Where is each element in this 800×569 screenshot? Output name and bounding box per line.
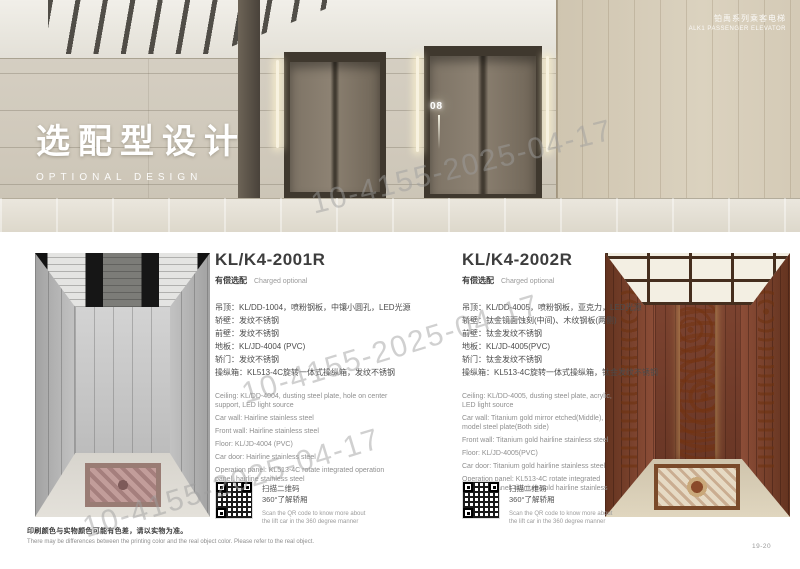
hall-lamp-icon — [546, 56, 549, 152]
floor-indicator: 08 — [430, 101, 443, 112]
catalog-page: 08 选配型设计 OPTIONAL DESIGN 铂禹系列乘客电梯 ALK1 P… — [0, 0, 800, 569]
charged-optional-badge: 有偿选配 Charged optional — [215, 275, 405, 286]
badge-zh: 有偿选配 — [462, 275, 494, 286]
qr-finder — [463, 508, 473, 518]
spec-line: Front wall: Hairline stainless steel — [215, 427, 405, 436]
qr-finder — [463, 482, 473, 492]
spec-list-en: Ceiling: KL/DD-4004, dusting steel plate… — [215, 392, 405, 484]
spec-line: Car door: Titanium gold hairline stainle… — [462, 462, 612, 471]
color-disclaimer: 印刷颜色与实物颜色可能有色差，请以实物为准。 There may be diff… — [27, 526, 314, 545]
cab-back-wall — [655, 301, 740, 461]
spec-line: 前壁：钛金发纹不锈钢 — [462, 327, 612, 340]
qr-code — [215, 481, 253, 519]
qr-finder — [242, 482, 252, 492]
qr-finder — [489, 482, 499, 492]
color-disclaimer-zh: 印刷颜色与实物颜色可能有色差，请以实物为准。 — [27, 526, 314, 536]
qr-caption-zh-1: 扫描二维码 — [509, 483, 621, 494]
badge-zh: 有偿选配 — [215, 275, 247, 286]
spec-line: 轿壁：发纹不锈钢 — [215, 314, 405, 327]
series-title-zh: 铂禹系列乘客电梯 — [689, 13, 786, 24]
spec-line: Floor: KL/JD-4004 (PVC) — [215, 440, 405, 449]
cab-render-2001r — [35, 253, 210, 517]
spec-list-zh: 吊顶：KL/DD-4005，喷粉钢板，亚克力，LED光源 轿壁：钛金镜面蚀刻(中… — [462, 301, 612, 379]
product-card-2002r: KL/K4-2002R 有偿选配 Charged optional 吊顶：KL/… — [462, 250, 612, 506]
spec-line: 吊顶：KL/DD-4005，喷粉钢板，亚克力，LED光源 — [462, 301, 612, 314]
hall-lamp-icon — [416, 56, 419, 152]
spec-line: 轿门：发纹不锈钢 — [215, 353, 405, 366]
gold-etched-panel — [680, 301, 715, 461]
qr-caption-en: Scan the QR code to know more about the … — [509, 510, 621, 526]
product-model: KL/K4-2001R — [215, 250, 405, 270]
spec-line: 操纵箱：KL513-4C旋转一体式操纵箱，发纹不锈钢 — [215, 366, 405, 379]
spec-line: Ceiling: KL/DD-4005, dusting steel plate… — [462, 392, 612, 410]
spec-line: Front wall: Titanium gold hairline stain… — [462, 436, 612, 445]
spec-line: Ceiling: KL/DD-4004, dusting steel plate… — [215, 392, 405, 410]
page-subtitle: OPTIONAL DESIGN — [36, 172, 246, 183]
qr-caption-zh-1: 扫描二维码 — [262, 483, 374, 494]
spec-line: Car wall: Titanium gold mirror etched(Mi… — [462, 414, 612, 432]
spec-line: 操纵箱：KL513-4C旋转一体式操纵箱，钛金发纹不锈钢 — [462, 366, 612, 379]
hall-lamp-icon — [276, 60, 279, 148]
spec-line: Car door: Hairline stainless steel — [215, 453, 405, 462]
spec-line: 轿门：钛金发纹不锈钢 — [462, 353, 612, 366]
product-model: KL/K4-2002R — [462, 250, 612, 270]
page-title: 选配型设计 — [36, 114, 246, 163]
spec-line: 轿壁：钛金镜面蚀刻(中间)、木纹钢板(两侧) — [462, 314, 612, 327]
page-title-block: 选配型设计 OPTIONAL DESIGN — [36, 114, 246, 183]
qr-caption: 扫描二维码 360°了解轿厢 Scan the QR code to know … — [262, 481, 374, 526]
qr-block-2001r: 扫描二维码 360°了解轿厢 Scan the QR code to know … — [215, 481, 374, 526]
qr-code — [462, 481, 500, 519]
spec-list-zh: 吊顶：KL/DD-1004，喷粉钢板，中镶小圆孔，LED光源 轿壁：发纹不锈钢 … — [215, 301, 405, 379]
qr-finder — [216, 508, 226, 518]
cab-back-wall — [75, 303, 170, 455]
hero-lobby-photo: 08 选配型设计 OPTIONAL DESIGN 铂禹系列乘客电梯 ALK1 P… — [0, 0, 800, 232]
cab-render-2002r — [605, 253, 790, 517]
qr-finder — [216, 482, 226, 492]
qr-caption-zh-2: 360°了解轿厢 — [262, 494, 374, 505]
elevator-door-1 — [284, 52, 386, 198]
spec-line: 吊顶：KL/DD-1004，喷粉钢板，中镶小圆孔，LED光源 — [215, 301, 405, 314]
gold-etched-strip — [758, 290, 774, 470]
series-title-en: ALK1 PASSENGER ELEVATOR — [689, 26, 786, 32]
spec-line: Floor: KL/JD-4005(PVC) — [462, 449, 612, 458]
spec-line: 前壁：发纹不锈钢 — [215, 327, 405, 340]
gold-etched-strip — [621, 290, 637, 470]
badge-en: Charged optional — [254, 278, 307, 285]
lobby-floor — [0, 198, 800, 232]
qr-block-2002r: 扫描二维码 360°了解轿厢 Scan the QR code to know … — [462, 481, 621, 526]
color-disclaimer-en: There may be differences between the pri… — [27, 539, 314, 545]
page-number: 19-20 — [752, 543, 771, 550]
qr-caption: 扫描二维码 360°了解轿厢 Scan the QR code to know … — [509, 481, 621, 526]
charged-optional-badge: 有偿选配 Charged optional — [462, 275, 612, 286]
badge-en: Charged optional — [501, 278, 554, 285]
spec-line: 地板：KL/JD-4005(PVC) — [462, 340, 612, 353]
spec-line: 地板：KL/JD-4004 (PVC) — [215, 340, 405, 353]
series-title-block: 铂禹系列乘客电梯 ALK1 PASSENGER ELEVATOR — [689, 13, 786, 32]
spec-line: Car wall: Hairline stainless steel — [215, 414, 405, 423]
product-card-2001r: KL/K4-2001R 有偿选配 Charged optional 吊顶：KL/… — [215, 250, 405, 488]
cab-floor-medallion — [654, 464, 740, 510]
elevator-door-2 — [424, 46, 542, 200]
qr-caption-zh-2: 360°了解轿厢 — [509, 494, 621, 505]
cab-floor-medallion — [85, 463, 161, 507]
qr-caption-en: Scan the QR code to know more about the … — [262, 510, 374, 526]
